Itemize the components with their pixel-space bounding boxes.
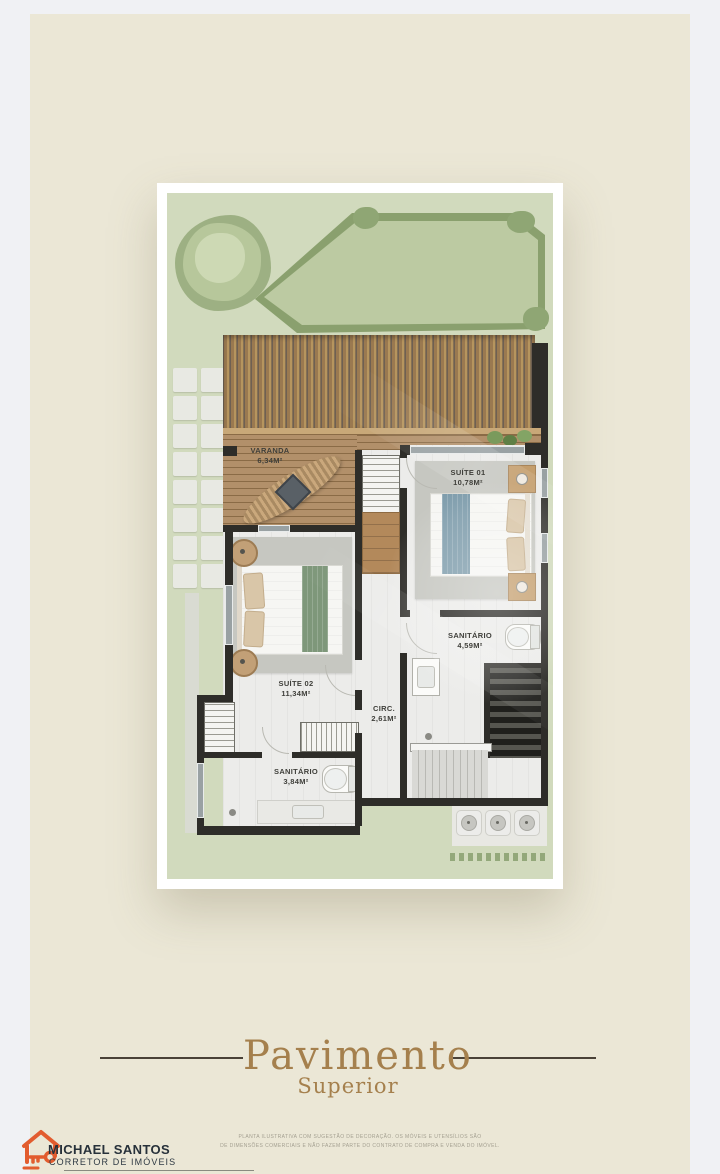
brand-name: MICHAEL SANTOS bbox=[48, 1142, 170, 1157]
floor-plan: VARANDA6,34M² SUÍTE 0110,78M² SUÍTE 0211… bbox=[167, 193, 553, 879]
room-label-suite01: SUÍTE 0110,78M² bbox=[451, 468, 486, 488]
room-label-sanitario-459: SANITÁRIO4,59M² bbox=[448, 631, 492, 651]
closet bbox=[204, 702, 235, 754]
room-label-suite02: SUÍTE 0211,34M² bbox=[279, 679, 314, 699]
ac-condenser-icon bbox=[514, 810, 540, 836]
disclaimer: PLANTA ILUSTRATIVA COM SUGESTÃO DE DECOR… bbox=[180, 1133, 540, 1151]
shower-drain bbox=[229, 809, 236, 816]
brand-rule bbox=[64, 1170, 254, 1171]
room-label-sanitario-384: SANITÁRIO3,84M² bbox=[274, 767, 318, 787]
shower-drain bbox=[425, 733, 432, 740]
room-label-circ: CIRC.2,61M² bbox=[371, 704, 396, 724]
window bbox=[225, 585, 233, 645]
bush-icon bbox=[523, 307, 549, 331]
plant-icon bbox=[487, 431, 503, 444]
room-label-varanda: VARANDA6,34M² bbox=[250, 446, 289, 466]
page-title: Pavimento bbox=[243, 1033, 453, 1079]
ac-condenser-icon bbox=[456, 810, 482, 836]
window bbox=[258, 525, 290, 532]
ac-condenser-icon bbox=[485, 810, 511, 836]
closet bbox=[300, 722, 359, 752]
window bbox=[197, 763, 204, 818]
floor-plan-card: VARANDA6,34M² SUÍTE 0110,78M² SUÍTE 0211… bbox=[157, 183, 563, 889]
title-rule-left bbox=[100, 1057, 243, 1059]
title-rule-right bbox=[453, 1057, 596, 1059]
wardrobe bbox=[362, 455, 400, 514]
brand-tagline: CORRETOR DE IMÓVEIS bbox=[49, 1157, 176, 1167]
plant-icon bbox=[517, 430, 532, 442]
stairs-lower bbox=[412, 750, 488, 798]
page-subtitle: Superior bbox=[243, 1074, 453, 1098]
